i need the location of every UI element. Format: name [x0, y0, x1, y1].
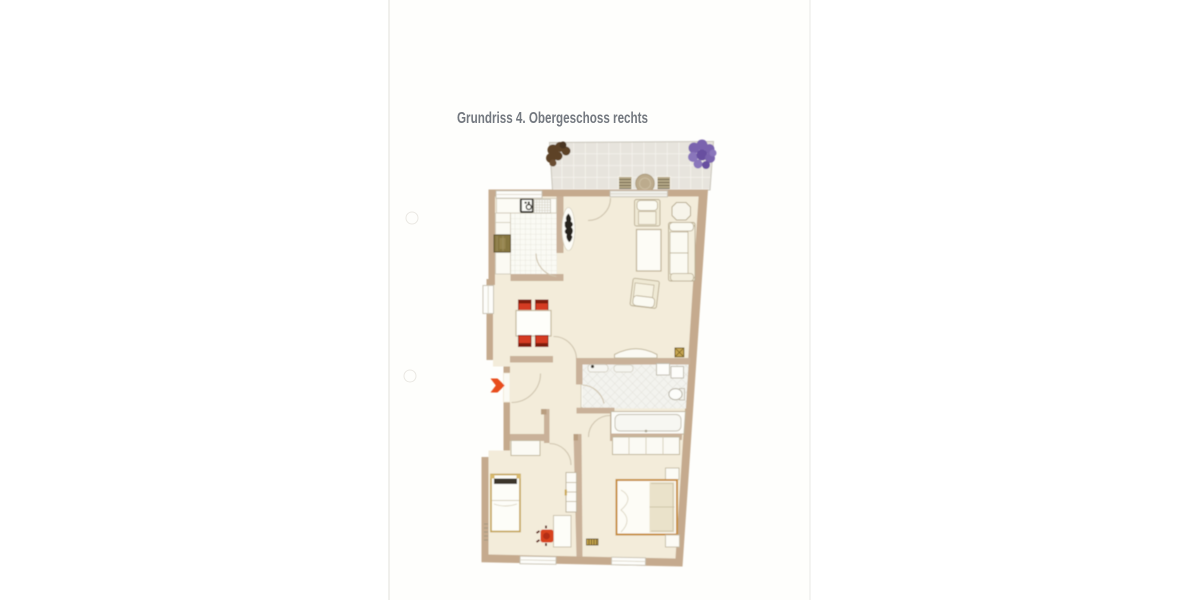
- svg-text:Grundriss 4. Obergeschoss rech: Grundriss 4. Obergeschoss rechts: [457, 110, 648, 127]
